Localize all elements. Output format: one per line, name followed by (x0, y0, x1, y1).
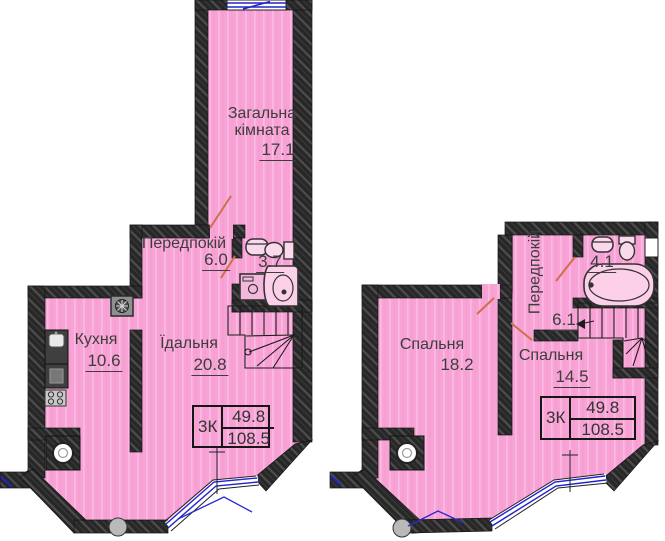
room-label-kitchen: Кухня (75, 332, 118, 349)
area-hall-right: 6.1 (550, 311, 578, 331)
facade-pillar (109, 518, 127, 536)
apartment-type: 3К (194, 407, 223, 446)
summary-table-right: 3К 49.8 108.5 (540, 396, 636, 440)
room-label-bedroom2: Спальня (519, 348, 583, 365)
room-label-dining: Їдальня (160, 336, 218, 353)
kitchen-sink-icon (45, 330, 68, 364)
toilet-icon (619, 236, 635, 260)
door-opening-bedroom1 (482, 284, 500, 299)
room-label-living: Загальна кімната (208, 106, 316, 140)
area-bedroom1: 18.2 (440, 356, 473, 374)
floor-plan-canvas: Загальна кімната 17.1 Передпокій 6.0 3.7… (0, 0, 665, 541)
area-bathroom-left: 3.7 (256, 253, 284, 273)
column (390, 436, 424, 470)
total-area-value: 108.5 (223, 429, 274, 449)
extractor-fan-icon (111, 296, 133, 316)
total-area-value: 108.5 (571, 420, 634, 440)
apartment-type: 3К (542, 398, 571, 438)
room-label-bedroom1: Спальня (400, 337, 464, 354)
entry-door-gap (645, 238, 658, 257)
facade-pillar (393, 519, 411, 537)
area-living-value: 17.1 (259, 141, 296, 161)
room-label-hallway-right: Передпокій (528, 230, 545, 314)
summary-table-left: 3К 49.8 108.5 (192, 405, 270, 448)
kitchen-counter (45, 364, 68, 388)
sink-icon (592, 237, 613, 252)
area-living: 17.1 (259, 141, 296, 161)
area-bedroom2: 14.5 (553, 368, 590, 388)
floor-plan-drawing (0, 0, 665, 541)
washing-machine-icon (240, 274, 266, 300)
living-area-value: 49.8 (223, 407, 274, 429)
column (46, 436, 80, 470)
area-kitchen: 10.6 (85, 352, 122, 372)
living-area-value: 49.8 (571, 398, 634, 420)
area-bathroom-right: 4.1 (588, 253, 616, 273)
area-dining: 20.8 (191, 356, 228, 376)
area-hallway-left: 6.0 (202, 251, 230, 271)
stove-icon (45, 390, 66, 406)
